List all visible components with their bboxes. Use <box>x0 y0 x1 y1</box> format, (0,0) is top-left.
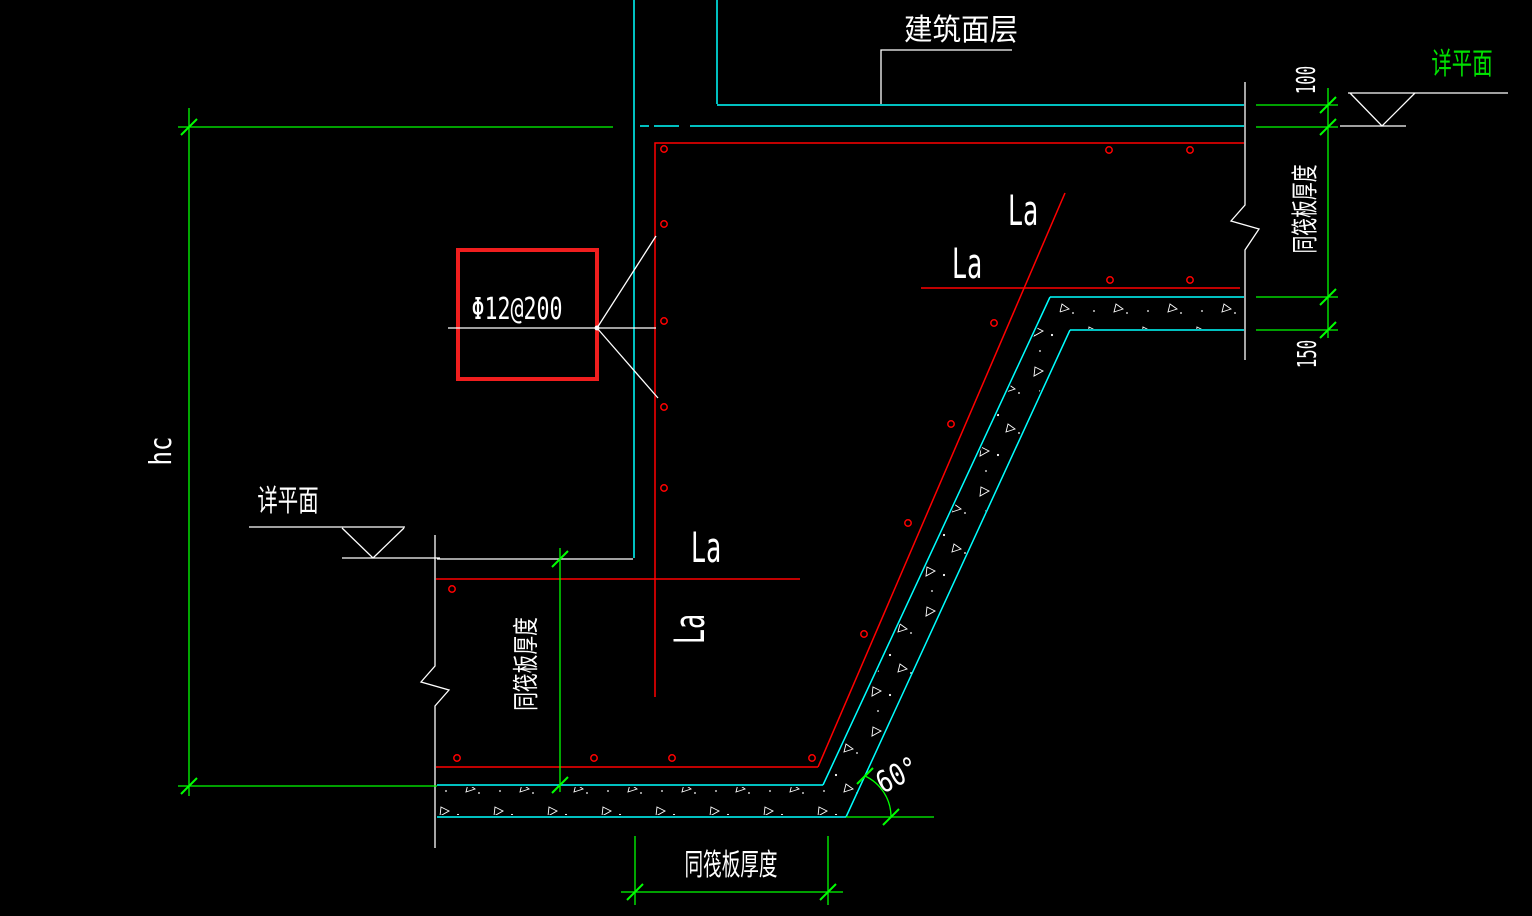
slope-rebar-line <box>818 193 1065 767</box>
anchorage-label-top-2: La <box>952 243 982 285</box>
finish-layer-label: 建筑面层 <box>904 16 1018 46</box>
anchorage-label-mid-horizontal: La <box>691 527 721 569</box>
raft-thickness-left-dim-label: 同筏板厚度 <box>514 617 540 711</box>
rebar-layer <box>436 143 1244 767</box>
cad-drawing-canvas: 建筑面层 详平面 100 同筏板厚度 150 Φ12@200 La La La … <box>0 0 1532 916</box>
plan-reference-right-label: 详平面 <box>1431 50 1492 80</box>
slope-bedding-line <box>846 330 1070 817</box>
raft-thickness-right-dim-label: 同筏板厚度 <box>1293 164 1320 253</box>
dimension-tick-marks <box>181 97 1336 900</box>
finish-thickness-dim-label: 100 <box>1294 66 1320 94</box>
drawing-linework <box>0 0 1532 916</box>
rebar-callout-label: Φ12@200 <box>471 295 562 325</box>
bedding-hatch <box>437 299 1244 815</box>
raft-thickness-bottom-dim-label: 同筏板厚度 <box>685 851 778 881</box>
anchorage-label-mid-vertical: La <box>669 614 711 644</box>
elevation-symbol-right <box>1340 93 1508 126</box>
plan-reference-left-label: 详平面 <box>257 487 318 517</box>
slope-face-line <box>823 297 1050 785</box>
wall-and-top-rebar-line <box>655 143 1244 697</box>
concrete-outlines <box>437 0 1244 817</box>
hc-dimension-lines <box>178 108 613 796</box>
pit-depth-dim-label: hc <box>147 437 177 466</box>
finish-layer-leader <box>881 50 1012 104</box>
elevation-symbol-left <box>249 527 440 558</box>
dimension-layer <box>178 88 1338 905</box>
bedding-thickness-dim-label: 150 <box>1295 340 1321 368</box>
anchorage-label-top-1: La <box>1008 190 1038 232</box>
